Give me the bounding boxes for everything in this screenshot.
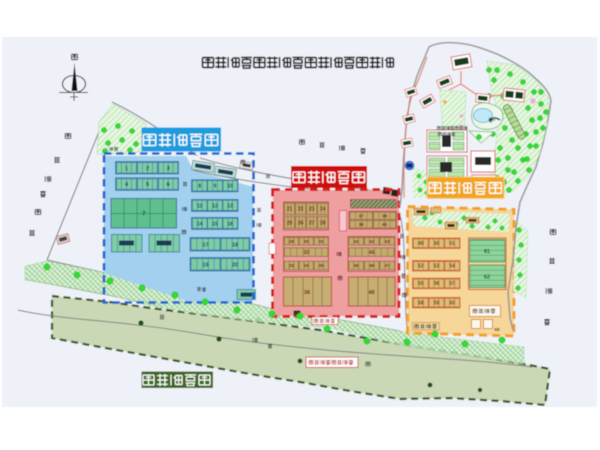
svg-text:31: 31	[319, 239, 325, 245]
svg-text:29: 29	[289, 239, 295, 245]
svg-text:16: 16	[227, 221, 233, 227]
svg-text:49: 49	[418, 241, 424, 247]
svg-text:15: 15	[212, 221, 218, 227]
svg-text:34: 34	[304, 263, 310, 269]
svg-text:43: 43	[385, 239, 391, 245]
svg-text:13: 13	[227, 203, 233, 209]
svg-text:21: 21	[287, 207, 293, 213]
svg-text:68: 68	[494, 327, 500, 332]
svg-text:5: 5	[146, 182, 149, 188]
svg-text:27: 27	[309, 220, 315, 226]
svg-text:42: 42	[369, 239, 375, 245]
svg-text:35: 35	[319, 263, 325, 269]
svg-text:38: 38	[382, 214, 388, 219]
svg-text:51: 51	[449, 241, 455, 247]
svg-text:39: 39	[359, 222, 365, 227]
svg-text:40: 40	[382, 222, 388, 227]
svg-text:18: 18	[232, 242, 238, 248]
svg-text:9: 9	[214, 184, 217, 190]
svg-text:8: 8	[198, 184, 201, 190]
svg-text:46: 46	[369, 263, 375, 269]
svg-text:41: 41	[354, 239, 360, 245]
svg-text:57: 57	[449, 281, 455, 287]
svg-text:17: 17	[202, 242, 208, 248]
svg-text:30: 30	[304, 239, 310, 245]
svg-text:59: 59	[434, 300, 440, 306]
svg-text:32: 32	[303, 250, 309, 256]
svg-text:22: 22	[298, 207, 304, 213]
svg-text:54: 54	[449, 264, 455, 270]
svg-text:47: 47	[385, 263, 391, 269]
svg-text:23: 23	[309, 207, 315, 213]
svg-text:19: 19	[202, 262, 208, 268]
svg-text:58: 58	[418, 300, 424, 306]
svg-text:61: 61	[484, 249, 490, 255]
svg-text:62: 62	[484, 275, 490, 281]
svg-text:48: 48	[368, 290, 374, 296]
svg-text:45: 45	[354, 263, 360, 269]
svg-text:52: 52	[418, 264, 424, 270]
svg-text:24: 24	[320, 207, 326, 213]
svg-text:50: 50	[434, 241, 440, 247]
svg-text:2: 2	[146, 166, 149, 172]
svg-text:3: 3	[167, 166, 170, 172]
svg-text:7: 7	[142, 211, 146, 218]
svg-text:12: 12	[212, 203, 218, 209]
svg-text:37: 37	[359, 214, 365, 219]
svg-text:20: 20	[232, 262, 238, 268]
svg-text:55: 55	[418, 281, 424, 287]
svg-text:44: 44	[369, 250, 375, 256]
svg-text:28: 28	[320, 220, 326, 226]
svg-text:25: 25	[287, 220, 293, 226]
svg-text:33: 33	[289, 263, 295, 269]
svg-text:10: 10	[227, 184, 233, 190]
svg-text:1: 1	[125, 166, 128, 172]
svg-text:26: 26	[298, 220, 304, 226]
svg-text:11: 11	[197, 203, 203, 209]
svg-text:53: 53	[434, 264, 440, 270]
svg-text:60: 60	[449, 300, 455, 306]
svg-text:56: 56	[434, 281, 440, 287]
svg-text:36: 36	[304, 290, 310, 296]
svg-text:6: 6	[167, 182, 170, 188]
svg-text:14: 14	[197, 221, 203, 227]
